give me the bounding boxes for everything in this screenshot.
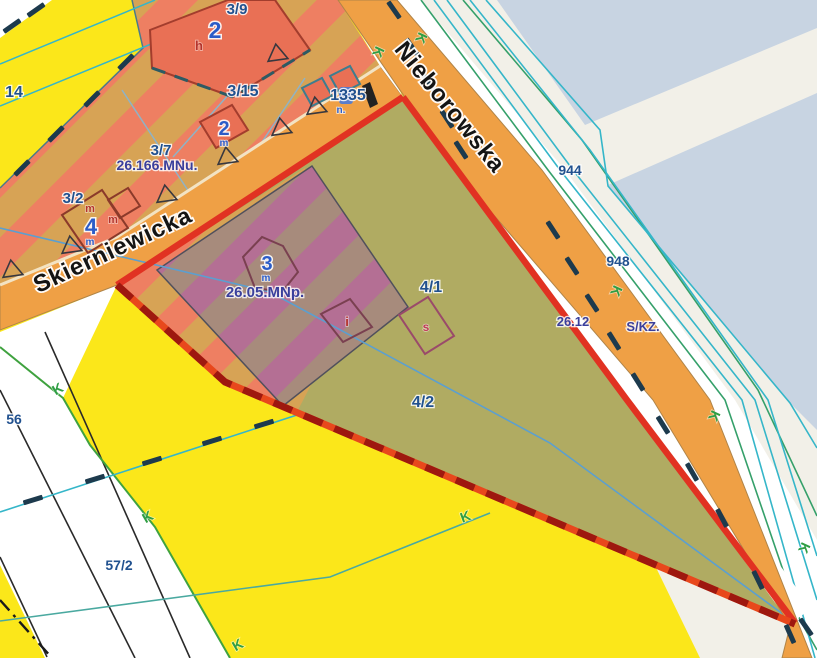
parcel-label[interactable]: 4/1 (420, 279, 442, 296)
map-annotation: 2 (218, 118, 229, 140)
map-annotation: n. (337, 105, 346, 116)
map-viewport[interactable]: KKKKKKKKK 143/92h3/151335n.2m3/726.166.M… (0, 0, 817, 658)
zone-code-label[interactable]: 26.05.MNp. (226, 284, 304, 301)
parcel-label[interactable]: 1335 (330, 87, 366, 104)
map-annotation: m (108, 214, 118, 226)
map-annotation: i (345, 314, 349, 329)
parcel-label[interactable]: 944 (558, 162, 582, 178)
parcel-label[interactable]: 14 (5, 84, 23, 101)
map-annotation: 3 (261, 253, 272, 275)
map-annotation: 4 (85, 214, 98, 239)
zone-code-label[interactable]: S/KZ. (626, 319, 659, 334)
map-annotation: s (423, 320, 430, 334)
parcel-label[interactable]: 4/2 (412, 394, 434, 411)
parcel-label[interactable]: 3/9 (227, 1, 248, 18)
map-annotation: h (195, 38, 203, 53)
map-annotation: m (262, 273, 271, 284)
parcel-label[interactable]: 948 (606, 253, 630, 269)
parcel-label[interactable]: 3/2 (63, 190, 84, 207)
zone-code-label[interactable]: 26.166.MNu. (117, 157, 198, 173)
map-annotation: m (220, 138, 229, 149)
parcel-label[interactable]: 3/15 (227, 83, 258, 100)
map-annotation: 2 (209, 17, 222, 43)
map-canvas[interactable]: KKKKKKKKK 143/92h3/151335n.2m3/726.166.M… (0, 0, 817, 658)
parcel-label[interactable]: 56 (6, 411, 22, 427)
parcel-label[interactable]: 57/2 (105, 557, 132, 573)
zone-code-label[interactable]: 26.12 (557, 314, 590, 329)
